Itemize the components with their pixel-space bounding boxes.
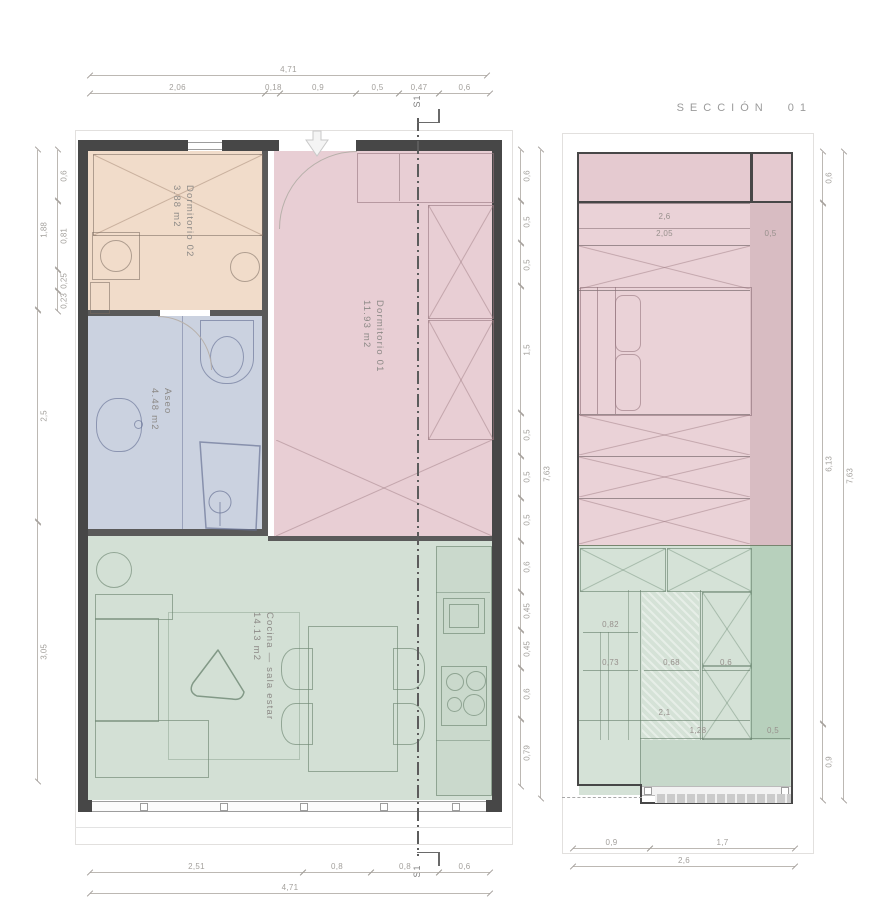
section-x-band (579, 457, 750, 497)
dim-bot-2: 0,8 (303, 872, 371, 873)
sink-tap (134, 420, 143, 429)
dim-label: 0,23 (60, 281, 69, 321)
sdim-right-2: 6,13 (822, 203, 823, 724)
dim-label: 0,5 (523, 245, 532, 285)
internal-dim: 0,82 (583, 620, 638, 629)
internal-dim: 0,68 (644, 658, 699, 667)
dim-label: 2,6 (573, 856, 795, 865)
dim-label: 0,6 (523, 674, 532, 714)
dim-right-10: 0,45 (520, 630, 521, 668)
burner (447, 697, 462, 712)
burner (446, 673, 464, 691)
chair (281, 703, 313, 745)
bed-elevation (580, 287, 752, 416)
dim-label: 2,06 (90, 83, 265, 92)
internal-dim: 2,6 (579, 212, 750, 221)
dim-label: 0,5 (523, 202, 532, 242)
chair (393, 703, 425, 745)
side-table (96, 552, 132, 588)
section-vline (700, 590, 701, 740)
dim-bot-1: 2,51 (90, 872, 303, 873)
dim-left-i2: 0,81 (57, 201, 58, 270)
section-green-panel (580, 548, 666, 592)
section-vline (600, 632, 601, 740)
room-name: Cocina — sala estar (264, 612, 275, 720)
section-line (579, 545, 791, 546)
dim-label: 1,7 (650, 838, 795, 847)
sdim-right-total: 7,63 (843, 152, 844, 800)
dim-bot-total: 4,71 (90, 893, 490, 894)
bed-cushion (615, 295, 641, 352)
room-name: Dormitorio 02 (184, 185, 195, 258)
dim-right-5: 0,5 (520, 413, 521, 456)
dim-right-6: 0,5 (520, 456, 521, 498)
dim-left-o3: 3,05 (37, 522, 38, 781)
dim-label: 0,6 (60, 156, 69, 196)
dim-label: 0,6 (523, 547, 532, 587)
closet-divider (399, 153, 400, 201)
room-label-dorm2: Dormitorio 02 3.88 m2 (170, 185, 196, 258)
s1-mark-top-v (438, 109, 440, 123)
sdim-right-3: 0,9 (822, 724, 823, 800)
section-cut-line (417, 118, 419, 856)
dim-label: 0,6 (825, 158, 834, 198)
dim-top-5: 0,47 (399, 93, 439, 94)
dim-label: 2,5 (40, 396, 49, 436)
section-title: SECCIÓN 01 (640, 102, 812, 114)
internal-dim: 0,5 (756, 726, 790, 735)
dim-label: 0,6 (439, 83, 490, 92)
counter-line (436, 740, 490, 741)
dim-label: 0,45 (523, 591, 532, 631)
section-vline (640, 590, 641, 784)
dim-left-i4: 0,23 (57, 291, 58, 311)
section-green-panel (702, 592, 752, 666)
sdim-bot-total: 2,6 (573, 866, 795, 867)
room-label-cocina: Cocina — sala estar 14.13 m2 (250, 612, 276, 720)
section-dim-line (702, 670, 750, 671)
dim-left-i3: 0,25 (57, 270, 58, 291)
room-name: Aseo (162, 388, 173, 414)
room-label-aseo: Aseo 4.48 m2 (148, 388, 174, 431)
dim-right-total: 7,63 (540, 150, 541, 798)
dim-right-8: 0,6 (520, 541, 521, 592)
dim-top-total: 4,71 (90, 75, 487, 76)
dim-right-9: 0,45 (520, 592, 521, 630)
bed-dorm1 (276, 440, 492, 536)
dim-label: 7,63 (543, 454, 552, 494)
kitchen-sink-basin (449, 604, 479, 628)
dining-table (308, 626, 398, 772)
sofa-seat (95, 618, 159, 722)
dim-label: 0,9 (573, 838, 650, 847)
dim-label: 0,18 (265, 83, 280, 92)
burner (463, 694, 485, 716)
glazing-mullion (380, 803, 388, 811)
sill-end (644, 787, 652, 795)
wall-top-2 (222, 140, 279, 151)
sdim-bot-2: 1,7 (650, 848, 795, 849)
internal-dim: 0,5 (750, 229, 791, 238)
dim-label: 4,71 (90, 65, 487, 74)
counter-line (436, 592, 490, 593)
s1-mark-bottom (417, 852, 439, 853)
dim-bot-3: 0,8 (371, 872, 439, 873)
dim-right-12: 0,79 (520, 719, 521, 786)
dim-right-7: 0,5 (520, 498, 521, 541)
stool (230, 252, 260, 282)
room-name: Dormitorio 01 (374, 300, 385, 373)
dim-label: 1,88 (40, 210, 49, 250)
glazing-mullion (220, 803, 228, 811)
dim-label: 0,79 (523, 733, 532, 773)
dim-label: 0,81 (60, 216, 69, 256)
section-vline (608, 632, 609, 740)
dim-right-4: 1,5 (520, 286, 521, 413)
bed-headboard-line (597, 287, 598, 414)
dim-right-2: 0,5 (520, 201, 521, 243)
glazing-mullion (300, 803, 308, 811)
s1-mark-top (417, 122, 439, 123)
bed-cushion (615, 354, 641, 411)
dim-label: 0,9 (280, 83, 356, 92)
room-area: 3.88 m2 (171, 185, 182, 228)
section-x-band (579, 499, 750, 544)
niche (90, 282, 110, 314)
dim-label: 0,45 (523, 629, 532, 669)
section-lower-strip (750, 545, 791, 740)
dim-top-1: 2,06 (90, 93, 265, 94)
wardrobe-dorm1-a (428, 205, 494, 319)
section-dim-line (756, 738, 790, 739)
section-wall-right (791, 152, 793, 804)
door-arc-aseo (158, 316, 212, 370)
section-top-divider (750, 154, 753, 201)
internal-dim: 2,05 (579, 229, 750, 238)
section-dim-line (583, 632, 638, 633)
section-dim-line (583, 670, 638, 671)
internal-dim: 1,28 (640, 726, 756, 735)
room-area: 11.93 m2 (361, 300, 372, 349)
dim-right-11: 0,6 (520, 668, 521, 719)
section-x-band (579, 246, 750, 289)
internal-dim: 0,6 (702, 658, 750, 667)
dim-label: 0,6 (523, 156, 532, 196)
toilet-bowl (210, 336, 244, 378)
dim-label: 7,63 (846, 456, 855, 496)
dim-label: 0,8 (371, 862, 439, 871)
glazing-mullion (140, 803, 148, 811)
dim-label: 0,5 (356, 83, 399, 92)
wall-bottom-right-stub (486, 800, 502, 812)
dim-left-o1: 1,88 (37, 150, 38, 310)
dim-label: 0,5 (523, 457, 532, 497)
room-area: 14.13 m2 (251, 612, 262, 661)
dim-label: 3,05 (40, 632, 49, 672)
coffee-table (184, 644, 252, 708)
dim-label: 0,9 (825, 742, 834, 782)
dim-label: 2,51 (90, 862, 303, 871)
section-paving (655, 794, 791, 803)
room-label-dorm1: Dormitorio 01 11.93 m2 (360, 300, 386, 373)
dim-top-4: 0,5 (356, 93, 399, 94)
sofa-top (95, 594, 173, 620)
sliding-glass-door (92, 801, 486, 812)
section-green-panel (667, 548, 752, 592)
dim-top-6: 0,6 (439, 93, 490, 94)
wall-left (78, 140, 88, 812)
partition-dorm1-living (268, 536, 492, 541)
dim-left-o2: 2,5 (37, 310, 38, 522)
sdim-bot-1: 0,9 (573, 848, 650, 849)
drawing-canvas: Dormitorio 02 3.88 m2 Dormitorio 01 11.9… (0, 0, 888, 921)
section-dim-line (644, 670, 699, 671)
dim-right-1: 0,6 (520, 150, 521, 201)
section-floor-left (577, 784, 642, 786)
section-dim-line (579, 720, 750, 721)
dim-label: 0,5 (523, 500, 532, 540)
section-dashed-line (562, 797, 642, 798)
internal-dim: 2,1 (579, 708, 750, 717)
wall-bottom-left-stub (78, 800, 92, 812)
section-dim-line (640, 738, 756, 739)
section-x-band (579, 415, 750, 455)
room-area: 4.48 m2 (149, 388, 160, 431)
dim-label: 0,8 (303, 862, 371, 871)
dim-bot-4: 0,6 (439, 872, 490, 873)
dim-label: 0,5 (523, 415, 532, 455)
sdim-right-1: 0,6 (822, 152, 823, 203)
shower (190, 440, 262, 532)
dim-label: 4,71 (90, 883, 490, 892)
dim-label: 1,5 (523, 330, 532, 370)
section-line (579, 203, 750, 204)
dim-label: 0,47 (399, 83, 439, 92)
window-top (188, 142, 222, 150)
dim-left-i1: 0,6 (57, 150, 58, 201)
dim-right-3: 0,5 (520, 243, 521, 286)
dim-label: 6,13 (825, 444, 834, 484)
bedside-lamp (100, 240, 132, 272)
door-arc-entry (279, 151, 357, 229)
internal-dim: 0,73 (583, 658, 638, 667)
burner (466, 671, 486, 691)
chair (393, 648, 425, 690)
wall-top-1 (78, 140, 188, 151)
glazing-mullion (452, 803, 460, 811)
partition-dorm2-aseo-b (210, 310, 262, 316)
section-top-slab (577, 152, 793, 203)
wall-top-3 (356, 140, 492, 151)
wardrobe-dorm1-b (428, 320, 494, 440)
chair (281, 648, 313, 690)
section-upper-strip (750, 203, 791, 545)
entry-closet (357, 153, 494, 203)
dim-top-3: 0,9 (280, 93, 356, 94)
dim-label: 0,6 (439, 862, 490, 871)
terrace-line (75, 827, 511, 828)
